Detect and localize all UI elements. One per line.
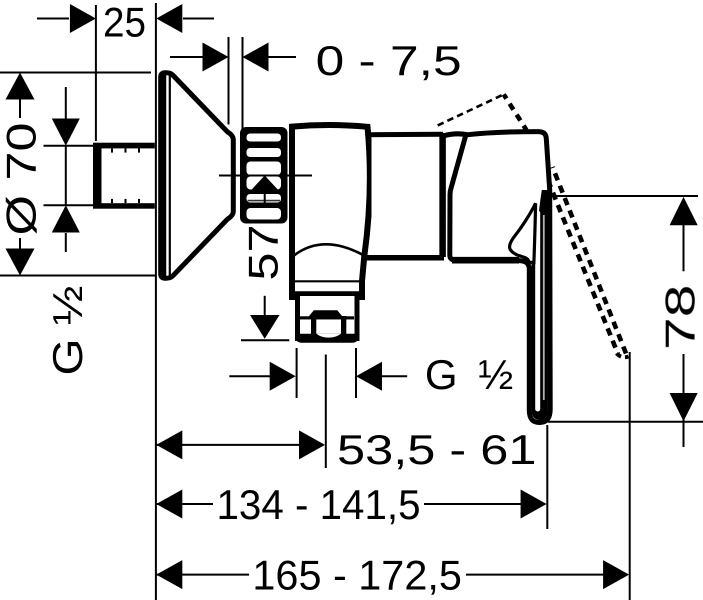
svg-text:78: 78 [656,285,703,351]
svg-text:G ½: G ½ [425,351,518,398]
svg-text:Ø 70: Ø 70 [0,123,45,236]
svg-text:57: 57 [240,225,287,281]
svg-text:0 - 7,5: 0 - 7,5 [316,37,462,84]
svg-text:165 - 172,5: 165 - 172,5 [252,551,462,598]
svg-text:53,5 - 61: 53,5 - 61 [337,426,537,473]
svg-text:134 - 141,5: 134 - 141,5 [217,481,421,528]
svg-text:25: 25 [103,0,146,45]
svg-text:G ½: G ½ [44,286,91,376]
